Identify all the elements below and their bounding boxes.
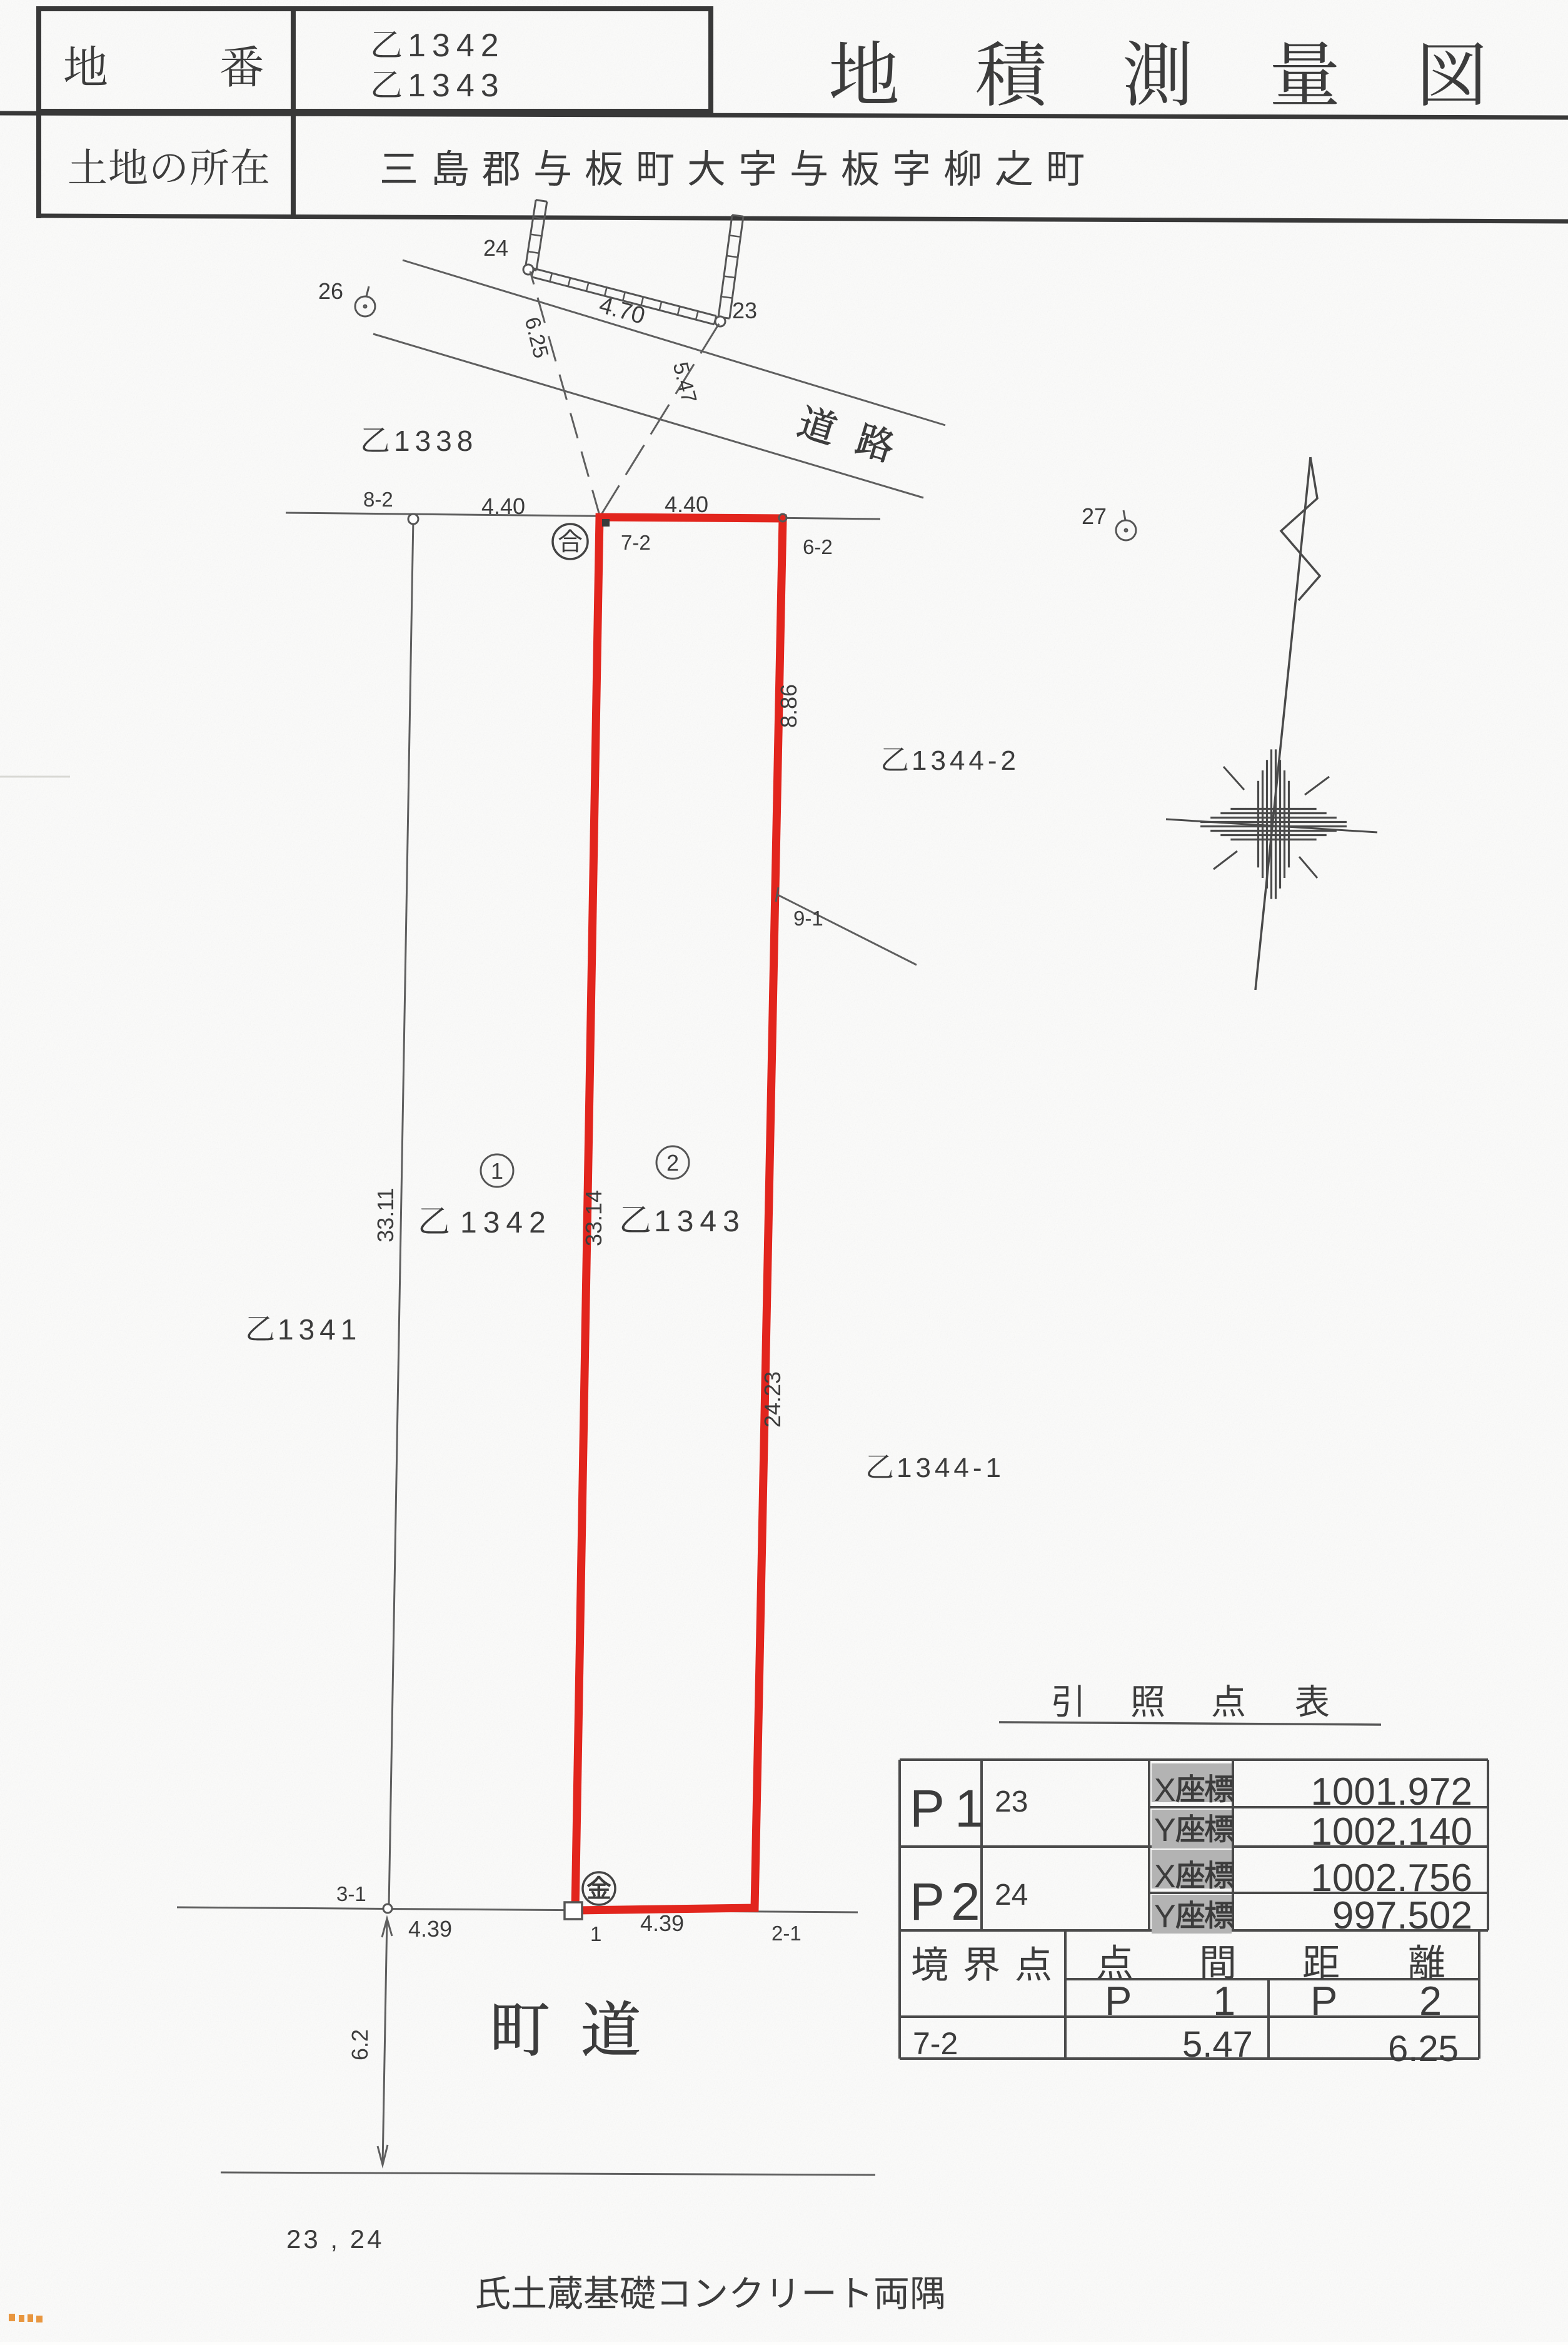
svg-text:7-2: 7-2	[913, 2026, 958, 2061]
svg-text:27: 27	[1082, 503, 1107, 529]
svg-text:26: 26	[318, 278, 343, 304]
svg-text:P: P	[1105, 1978, 1132, 2024]
svg-text:2: 2	[1419, 1978, 1442, 2024]
svg-text:1: 1	[955, 1779, 984, 1838]
svg-text:9-1: 9-1	[793, 907, 823, 930]
svg-text:X: X	[1154, 1858, 1176, 1895]
svg-text:1343: 1343	[654, 1205, 746, 1238]
svg-text:6-2: 6-2	[803, 535, 833, 558]
svg-text:P: P	[1310, 1978, 1337, 2024]
svg-text:1002.140: 1002.140	[1310, 1810, 1472, 1853]
svg-text:23: 23	[995, 1785, 1028, 1818]
svg-text:1343: 1343	[408, 68, 505, 104]
svg-text:1001.972: 1001.972	[1310, 1770, 1472, 1813]
svg-text:2-1: 2-1	[771, 1922, 802, 1945]
svg-text:7-2: 7-2	[621, 531, 651, 554]
svg-text:23: 23	[732, 298, 757, 323]
svg-text:Y: Y	[1154, 1812, 1176, 1848]
svg-text:2: 2	[951, 1872, 980, 1931]
svg-text:6.2: 6.2	[347, 2029, 373, 2060]
svg-text:23 , 24: 23 , 24	[286, 2224, 384, 2254]
svg-text:4.39: 4.39	[408, 1916, 452, 1942]
svg-text:24: 24	[483, 235, 508, 261]
svg-text:Y: Y	[1154, 1899, 1176, 1935]
svg-text:P: P	[910, 1779, 945, 1838]
svg-text:997.502: 997.502	[1332, 1894, 1472, 1937]
svg-text:P: P	[910, 1872, 945, 1931]
svg-text:1342: 1342	[460, 1206, 552, 1239]
svg-text:4.40: 4.40	[481, 493, 525, 519]
svg-text:8-2: 8-2	[363, 488, 393, 511]
svg-text:8.86: 8.86	[776, 684, 802, 728]
svg-text:1: 1	[491, 1158, 503, 1184]
svg-text:24.23: 24.23	[760, 1371, 785, 1428]
svg-text:6.25: 6.25	[1388, 2029, 1459, 2069]
svg-text:1: 1	[590, 1922, 601, 1945]
svg-text:1: 1	[1213, 1978, 1235, 2024]
svg-text:2: 2	[666, 1150, 679, 1176]
svg-text:1002.756: 1002.756	[1310, 1857, 1472, 1900]
svg-text:1341: 1341	[278, 1313, 361, 1346]
svg-text:4.39: 4.39	[640, 1910, 684, 1936]
svg-text:1342: 1342	[408, 28, 505, 64]
svg-text:33.11: 33.11	[373, 1188, 398, 1242]
svg-text:1344-1: 1344-1	[897, 1453, 1005, 1483]
svg-text:3-1: 3-1	[336, 1882, 366, 1905]
svg-text:4.40: 4.40	[665, 492, 708, 517]
svg-text:5.47: 5.47	[1182, 2024, 1253, 2065]
svg-text:33.14: 33.14	[581, 1190, 606, 1246]
svg-text:1344-2: 1344-2	[912, 745, 1020, 776]
svg-text:24: 24	[995, 1879, 1028, 1912]
svg-text:X: X	[1154, 1772, 1176, 1808]
svg-text:1338: 1338	[394, 425, 478, 457]
